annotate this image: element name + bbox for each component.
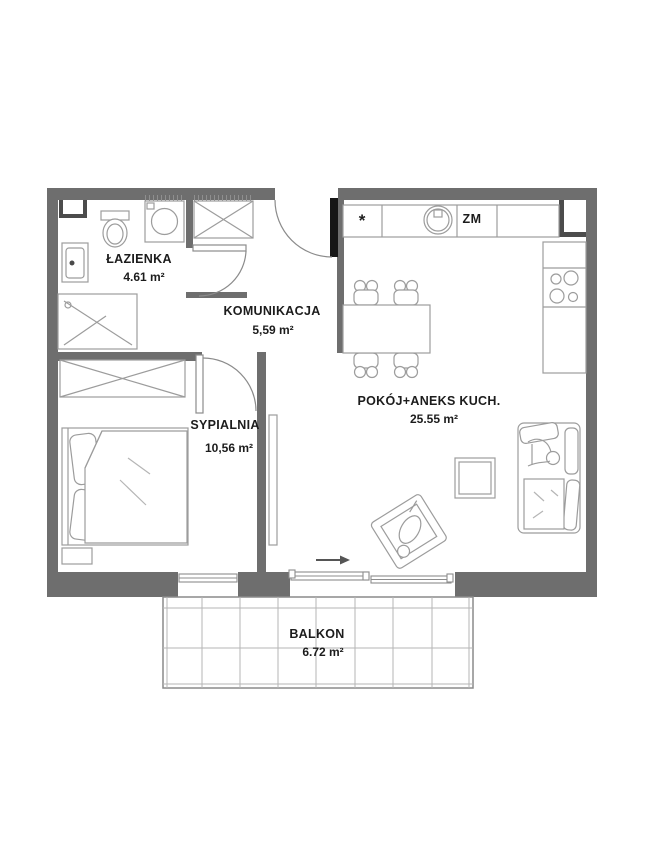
armchair-icon <box>370 493 448 570</box>
balcony-deck <box>163 597 473 688</box>
bedroom-furniture <box>60 360 188 564</box>
room-area-komunikacja: 5,59 m² <box>252 323 293 337</box>
room-area-sypialnia: 10,56 m² <box>205 441 253 455</box>
room-area-pokoj: 25.55 m² <box>410 412 458 426</box>
kitchen-star-symbol: * <box>359 211 366 231</box>
room-label-sypialnia: SYPIALNIA <box>190 418 259 432</box>
room-area-lazienka: 4.61 m² <box>123 270 164 284</box>
plan-linework <box>0 0 653 844</box>
balcony-window-icon <box>371 574 453 583</box>
washing-machine-icon <box>145 201 184 242</box>
washbasin-icon <box>62 243 88 282</box>
tv-unit-icon <box>269 415 277 545</box>
bedroom-window-icon <box>179 574 237 582</box>
room-label-pokoj: POKÓJ+ANEKS KUCH. <box>358 394 501 408</box>
room-label-komunikacja: KOMUNIKACJA <box>223 304 320 318</box>
direction-arrow-icon <box>316 556 350 565</box>
coffee-table-icon <box>455 458 495 498</box>
bathroom-door <box>193 245 246 296</box>
floor-plan: ŁAZIENKA 4.61 m² KOMUNIKACJA 5,59 m² SYP… <box>0 0 653 844</box>
shower-icon <box>58 294 137 349</box>
room-area-balkon: 6.72 m² <box>302 645 343 659</box>
bathroom-fixtures <box>58 201 184 349</box>
toilet-icon <box>101 211 129 247</box>
wardrobe-icon <box>60 360 185 397</box>
hall-closet-icon <box>194 201 253 238</box>
balcony-door-icon <box>289 570 369 580</box>
bedside-table-icon <box>62 548 92 564</box>
sofa-icon <box>518 422 580 533</box>
bedroom-door <box>196 355 256 413</box>
room-label-lazienka: ŁAZIENKA <box>106 252 172 266</box>
room-label-balkon: BALKON <box>289 627 344 641</box>
windows <box>179 570 453 583</box>
kitchen-sink-icon <box>424 206 452 234</box>
entrance-door-arc <box>275 200 332 257</box>
dining-table-icon <box>343 305 430 353</box>
dishwasher-label: ZM <box>462 212 481 226</box>
bed-icon <box>62 428 188 545</box>
